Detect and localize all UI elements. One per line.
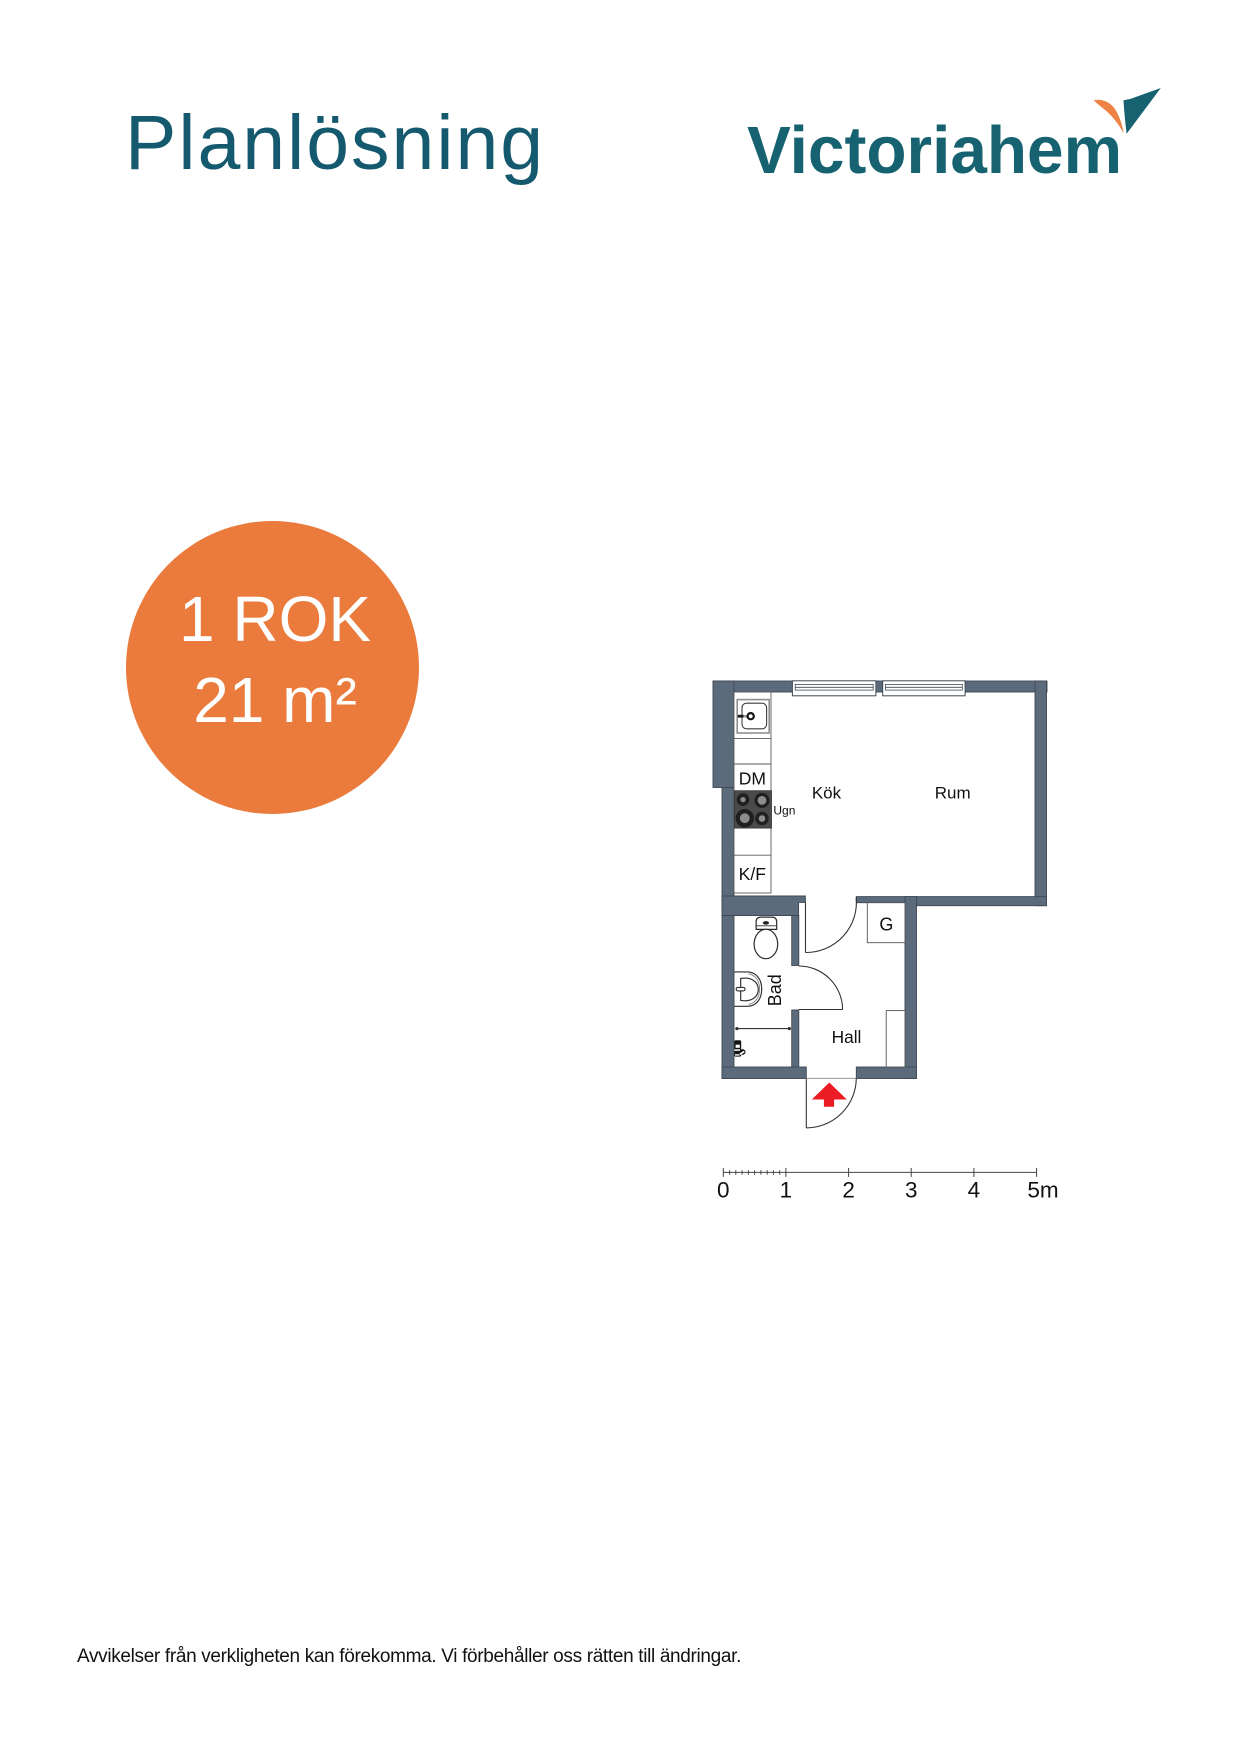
svg-text:K/F: K/F bbox=[739, 864, 766, 884]
svg-text:Ugn: Ugn bbox=[773, 803, 795, 817]
svg-text:5m: 5m bbox=[1027, 1178, 1058, 1203]
svg-text:1: 1 bbox=[780, 1178, 793, 1203]
svg-text:Hall: Hall bbox=[832, 1027, 862, 1047]
svg-text:Kök: Kök bbox=[812, 784, 842, 803]
svg-text:Bad: Bad bbox=[765, 974, 785, 1006]
svg-text:0: 0 bbox=[717, 1178, 730, 1203]
svg-text:4: 4 bbox=[968, 1178, 981, 1203]
svg-text:Rum: Rum bbox=[935, 784, 971, 803]
svg-text:G: G bbox=[879, 914, 893, 934]
svg-text:3: 3 bbox=[905, 1178, 918, 1203]
svg-text:2: 2 bbox=[842, 1178, 855, 1203]
svg-text:DM: DM bbox=[739, 768, 766, 788]
